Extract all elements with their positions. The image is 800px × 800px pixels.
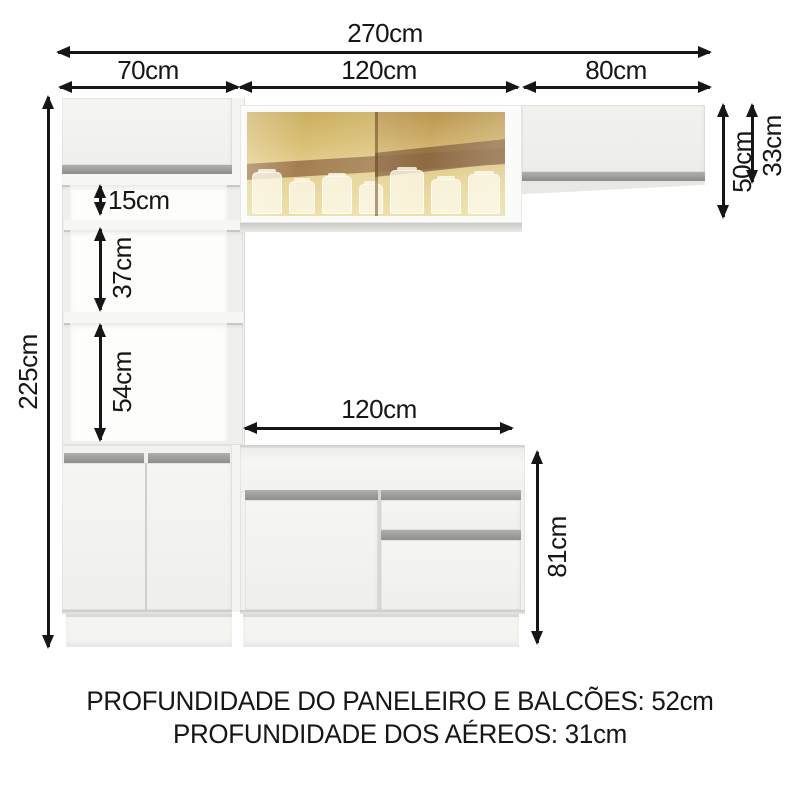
base-left-handle-strip-1 — [64, 453, 144, 463]
counter-width-arrow — [245, 427, 512, 430]
glass-width-arrow — [240, 86, 518, 89]
tower-niche-54cm — [70, 323, 227, 441]
tower-width-arrow — [60, 86, 238, 89]
kitchen-dimension-diagram: 270cm 70cm 120cm 80cm 225cm 15cm 37cm 54… — [0, 0, 800, 800]
tower-width-label: 70cm — [117, 57, 179, 83]
counter-section-divider — [378, 490, 381, 610]
aerial-width-arrow — [524, 86, 710, 89]
glass-cabinet-glass — [247, 112, 505, 216]
total-width-arrow — [58, 51, 710, 54]
niche-small-arrow — [99, 186, 102, 214]
footer-depth-note-1: PROFUNDIDADE DO PANELEIRO E BALCÕES: 52c… — [86, 688, 713, 715]
plinth-left — [66, 614, 232, 647]
counter-drawer-handle-strip — [381, 490, 521, 500]
total-height-arrow — [47, 97, 50, 647]
counter-lower-handle-strip — [381, 530, 521, 540]
countertop — [240, 445, 525, 492]
plinth-center — [243, 614, 519, 647]
aerial-cabinet-bottom-panel — [522, 181, 705, 194]
niche-large-label: 54cm — [109, 351, 135, 413]
footer-depth-note-2: PROFUNDIDADE DOS AÉREOS: 31cm — [173, 721, 627, 748]
total-width-label: 270cm — [347, 20, 423, 46]
niche-large-arrow — [99, 325, 102, 440]
aerial-height-arrow — [722, 105, 725, 217]
counter-drawer-front — [381, 500, 521, 530]
counter-height-label: 81cm — [544, 516, 570, 578]
counter-left-door — [245, 500, 378, 610]
counter-height-arrow — [536, 452, 539, 643]
counter-left-handle-strip — [245, 490, 378, 500]
counter-width-label: 120cm — [341, 396, 417, 422]
tower-top-door — [62, 98, 232, 165]
aerial-door-height-label: 33cm — [759, 115, 785, 177]
niche-medium-label: 37cm — [109, 237, 135, 299]
aerial-cabinet-handle-strip — [522, 172, 705, 181]
tower-top-door-handle-strip — [62, 165, 232, 174]
glass-width-label: 120cm — [341, 57, 417, 83]
niche-medium-arrow — [99, 229, 102, 310]
niche-small-label: 15cm — [108, 187, 170, 213]
glass-sliding-door-divider — [375, 112, 378, 216]
base-left-doors — [62, 463, 232, 610]
base-left-handle-strip-2 — [148, 453, 230, 463]
base-left-door-divider — [145, 463, 147, 610]
glass-cabinet-bottom-shadow — [240, 223, 522, 232]
aerial-cabinet-door — [522, 105, 705, 172]
total-height-label: 225cm — [15, 334, 41, 410]
aerial-height-label: 50cm — [729, 131, 755, 193]
aerial-width-label: 80cm — [585, 57, 647, 83]
counter-right-door — [381, 540, 521, 610]
